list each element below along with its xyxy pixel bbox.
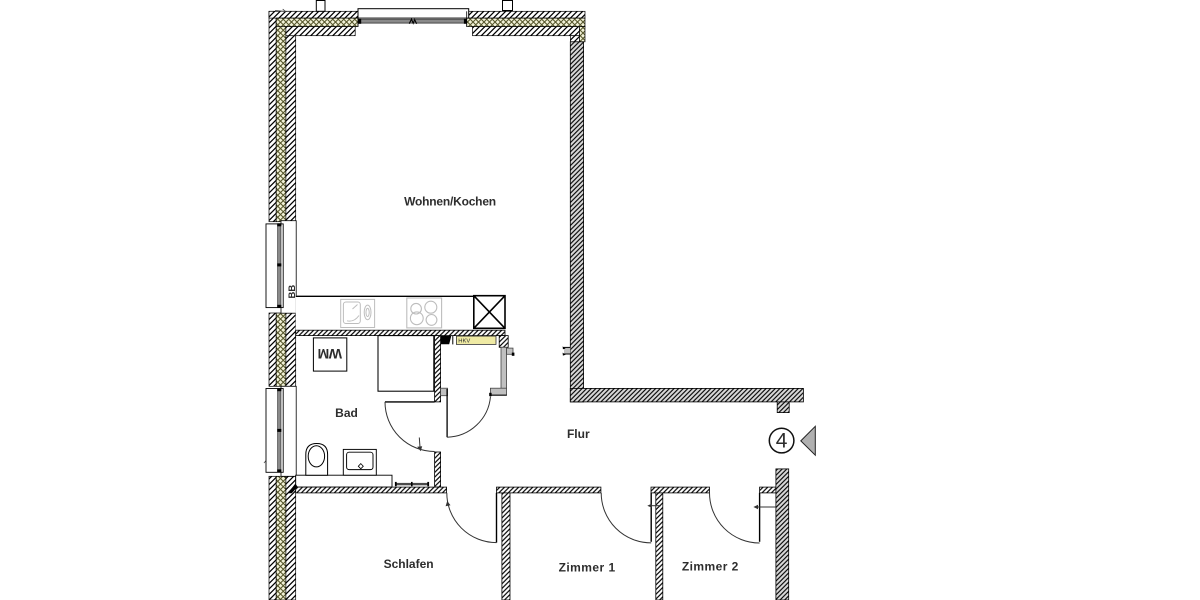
svg-text:Flur: Flur [567, 427, 590, 441]
svg-text:Schlafen: Schlafen [384, 557, 434, 571]
svg-text:HKV: HKV [458, 339, 470, 345]
svg-text:WM: WM [318, 346, 342, 362]
svg-text:Bad: Bad [335, 406, 358, 420]
svg-text:Zimmer 2: Zimmer 2 [682, 559, 739, 573]
svg-text:Wohnen/Kochen: Wohnen/Kochen [404, 195, 496, 209]
svg-text:4: 4 [776, 430, 788, 453]
svg-text:Zimmer 1: Zimmer 1 [559, 560, 616, 574]
